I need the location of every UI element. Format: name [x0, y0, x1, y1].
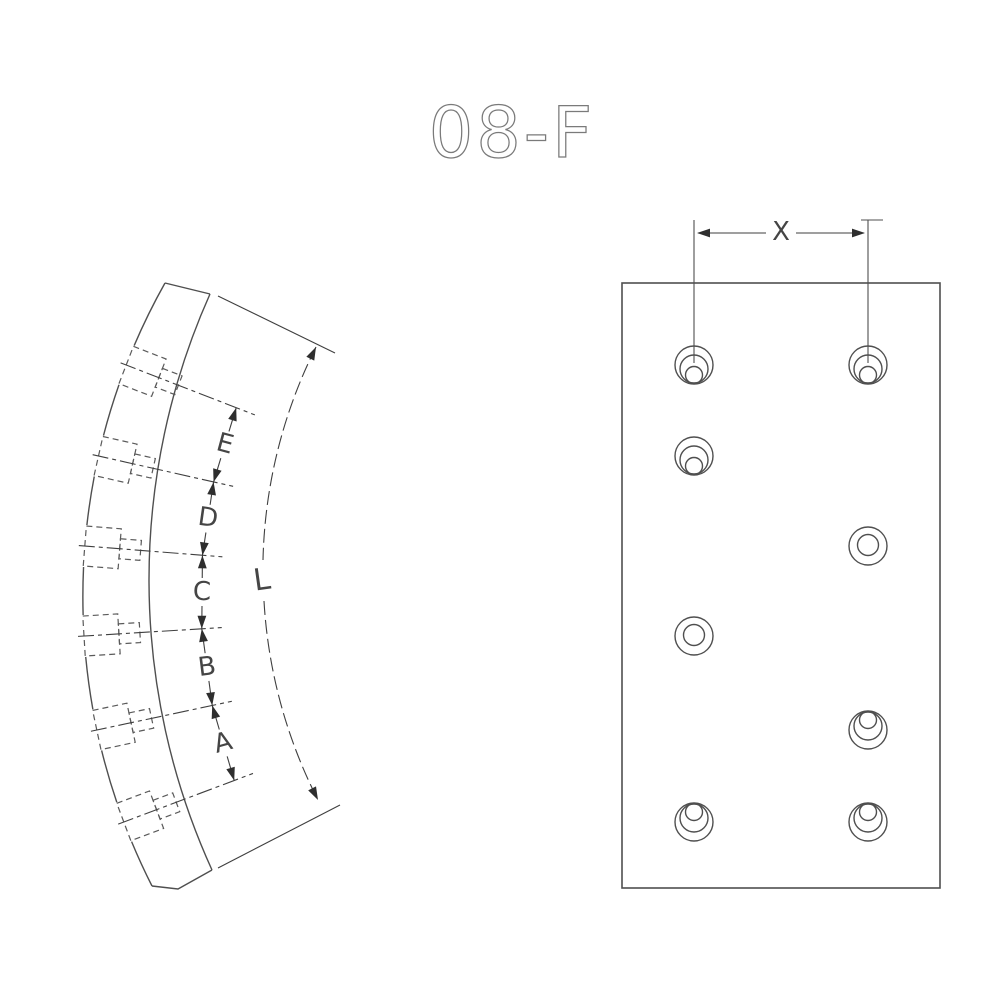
dim-label-c: C [193, 577, 212, 607]
length-arrowhead [308, 786, 318, 800]
rivet-hole [675, 617, 713, 655]
x-dim-label: X [772, 217, 790, 247]
rivet-hole-circle [686, 367, 703, 384]
rivet-hole-circle [858, 535, 879, 556]
hole-centerline [118, 773, 253, 824]
rivet-hole-circle [849, 527, 887, 565]
dim-label-a: A [211, 726, 236, 760]
rivet-hole-circle [684, 625, 705, 646]
dimension-arrowhead [200, 542, 209, 556]
outer-face-arc [83, 283, 165, 886]
flat-view-outline [622, 283, 940, 888]
length-dimension-arc [263, 347, 316, 560]
rivet-hole [849, 711, 887, 749]
drawing-canvas: 08-F E D C B A L X [0, 0, 1000, 1000]
technical-drawing-svg: 08-F E D C B A L X [0, 0, 1000, 1000]
hole-centerline [78, 628, 222, 637]
dimension-arrowhead [199, 629, 208, 642]
flat-view [622, 220, 940, 888]
drawing-title: 08-F [429, 92, 596, 174]
rivet-hole [849, 803, 887, 841]
hole-centerline [91, 701, 232, 731]
dimension-arrowhead [198, 555, 207, 568]
length-arrowhead [306, 347, 316, 361]
dim-label-d: D [196, 502, 220, 534]
rivet-hole-circle [860, 712, 877, 729]
top-end-edge [165, 283, 210, 294]
rivet-hole-circle [854, 804, 882, 832]
rivet-hole-hidden [111, 755, 260, 843]
rivet-hole-circle [860, 367, 877, 384]
length-dim-label: L [251, 561, 273, 598]
dimension-arrowhead [207, 482, 216, 496]
rivet-hole-circle [680, 804, 708, 832]
length-extension-line [218, 296, 335, 353]
rivet-hole [849, 527, 887, 565]
length-extension-line [218, 805, 340, 868]
length-dimension-arc [264, 601, 318, 800]
dim-label-b: B [196, 651, 217, 683]
rivet-hole [675, 803, 713, 841]
rivet-hole-circle [686, 458, 703, 475]
dimension-arrowhead [198, 616, 207, 629]
dimension-arrowhead [206, 692, 215, 705]
dimension-arrowhead [213, 468, 221, 482]
rivet-hole [675, 437, 713, 475]
rivet-hole-circle [854, 712, 882, 740]
hole-centerline [121, 363, 255, 415]
rivet-hole-circle [860, 804, 877, 821]
rivet-hole-circle [686, 804, 703, 821]
dim-label-e: E [213, 427, 237, 460]
rivet-hole-hidden [113, 344, 262, 433]
dimension-arrowhead [212, 705, 220, 719]
hole-centerline [93, 455, 233, 487]
dimension-arrowhead [228, 408, 236, 422]
rivet-hole-circle [675, 617, 713, 655]
dimension-arrowhead [226, 767, 234, 781]
bottom-end-edge [152, 870, 212, 889]
dimension-arrowhead [852, 229, 865, 238]
rivet-hole-circle [680, 446, 708, 474]
hole-centerline [79, 546, 223, 557]
dimension-arrowhead [697, 229, 710, 238]
